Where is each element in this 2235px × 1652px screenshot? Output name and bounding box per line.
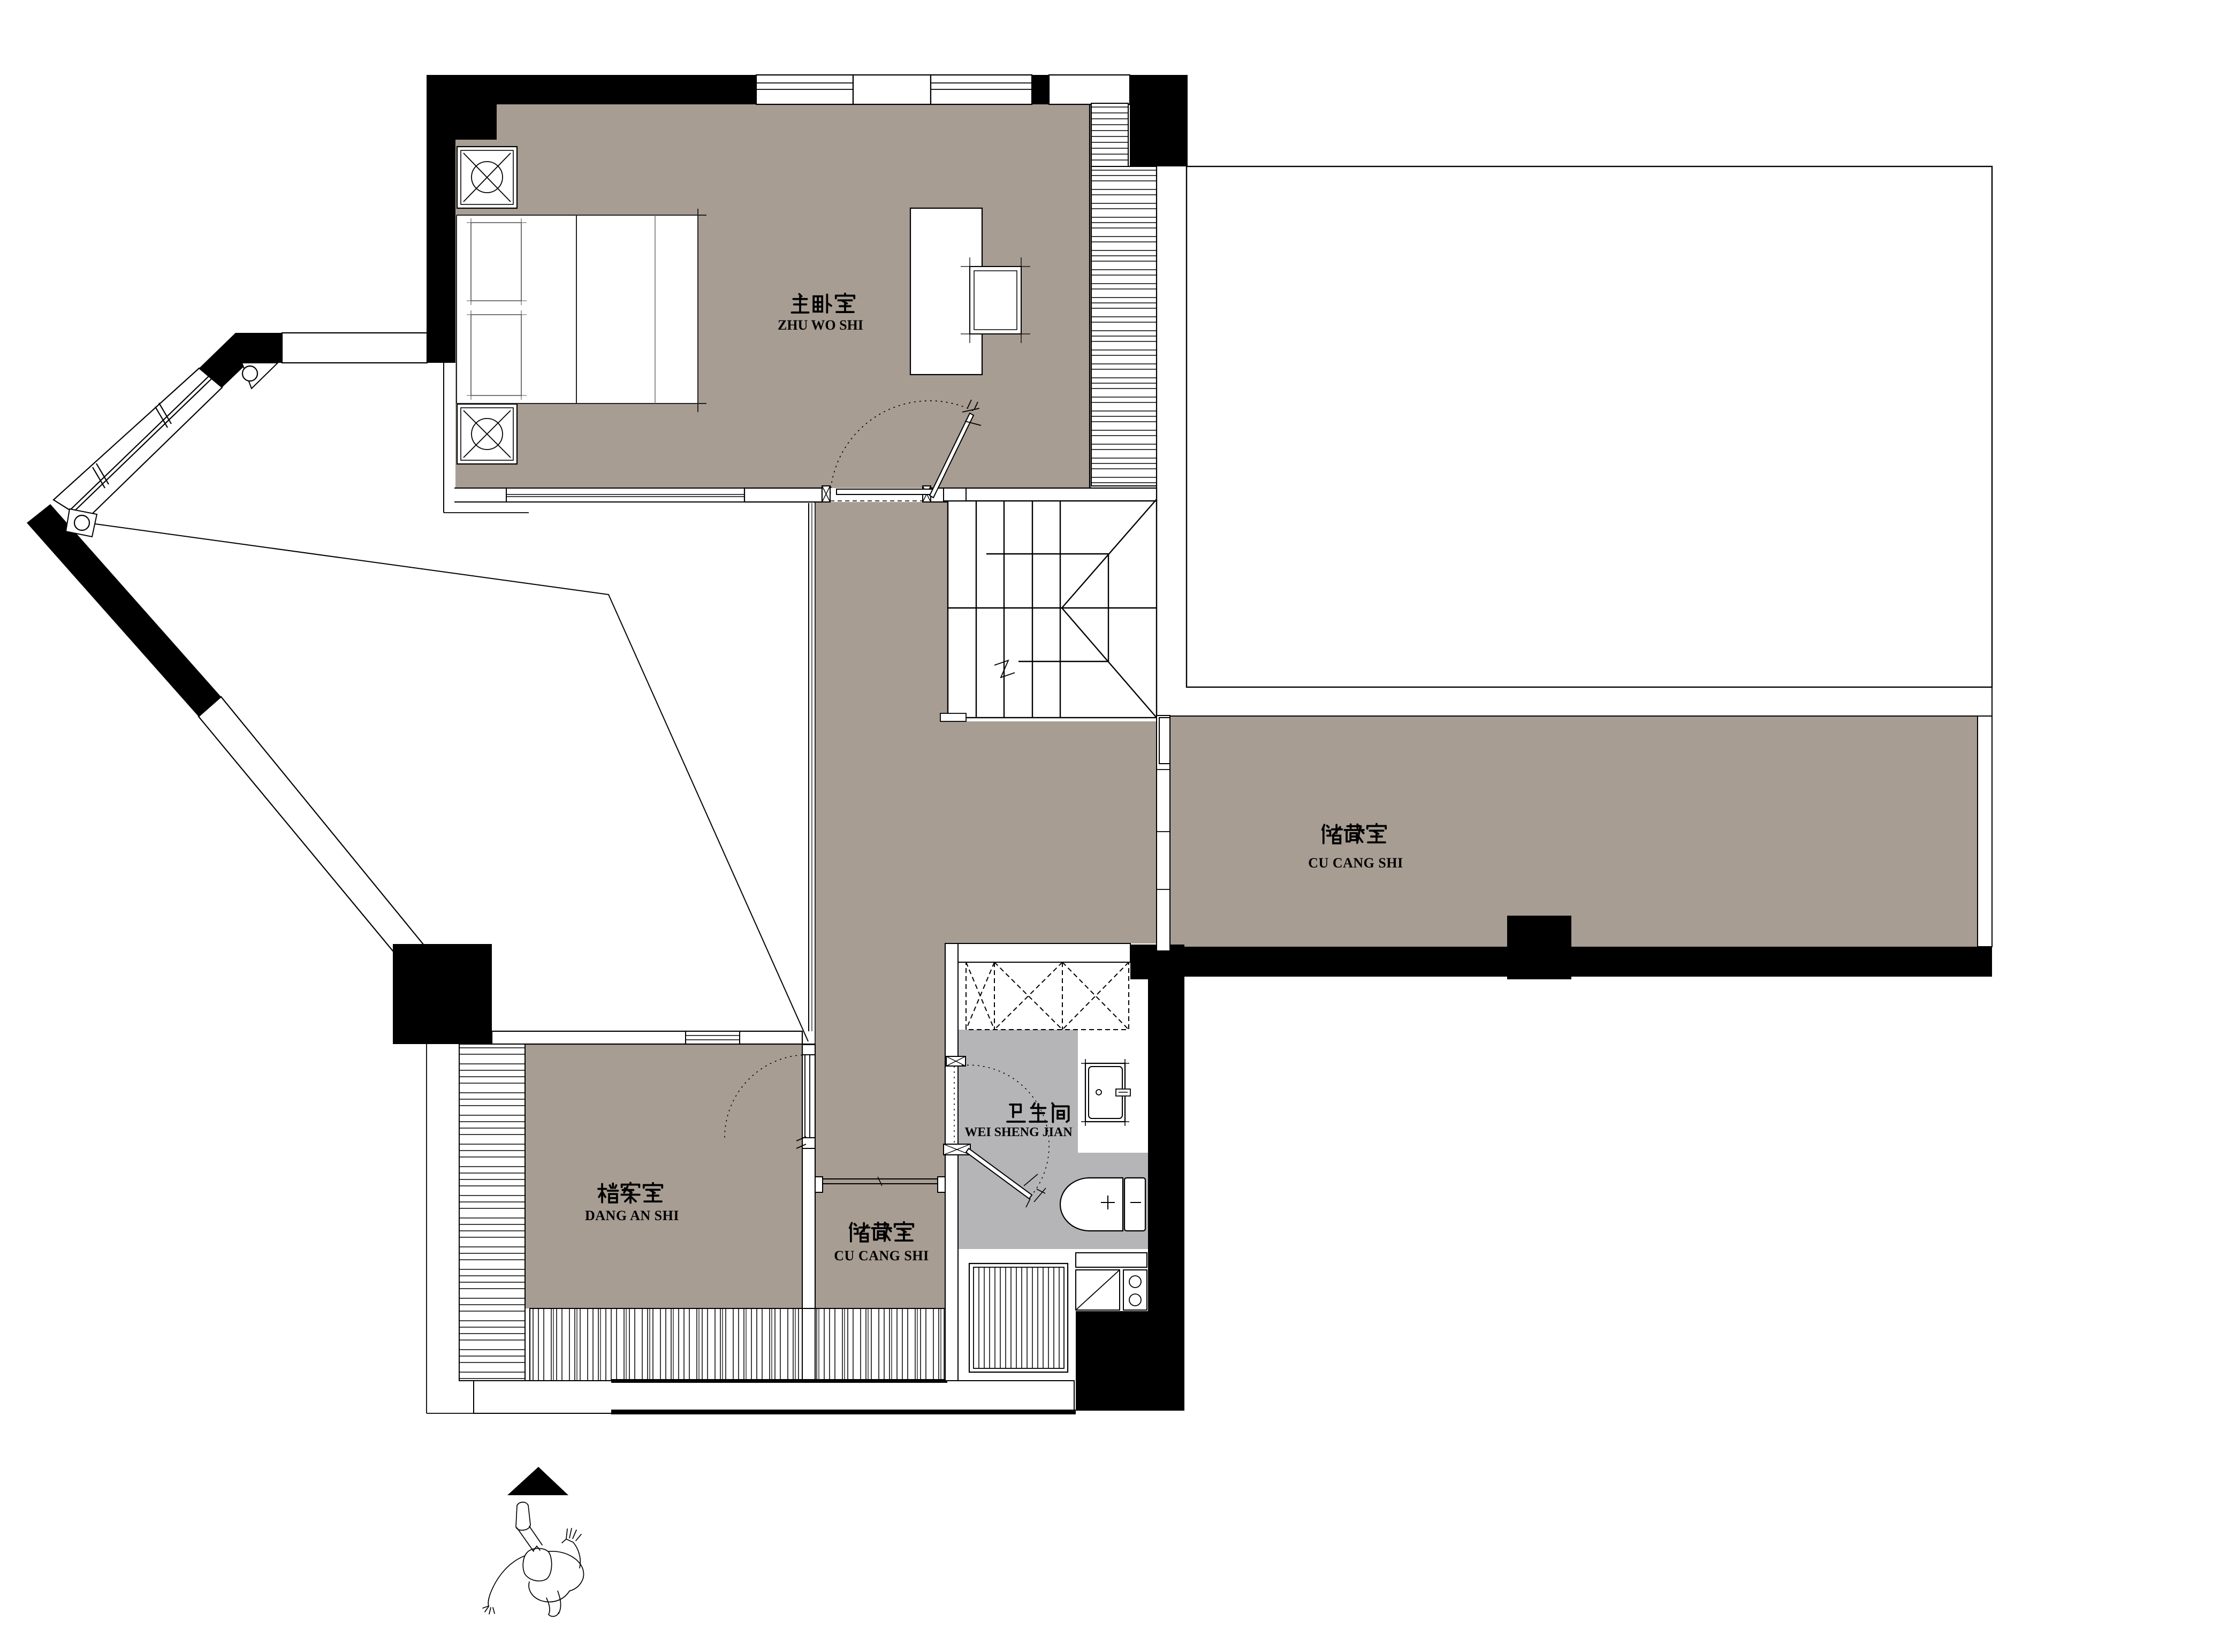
svg-text:WEI SHENG JIAN: WEI SHENG JIAN [964,1125,1073,1139]
svg-text:CU CANG SHI: CU CANG SHI [834,1248,929,1263]
svg-text:DANG AN SHI: DANG AN SHI [585,1208,679,1223]
svg-text:CU CANG SHI: CU CANG SHI [1308,855,1403,871]
svg-text:ZHU WO SHI: ZHU WO SHI [778,317,863,333]
